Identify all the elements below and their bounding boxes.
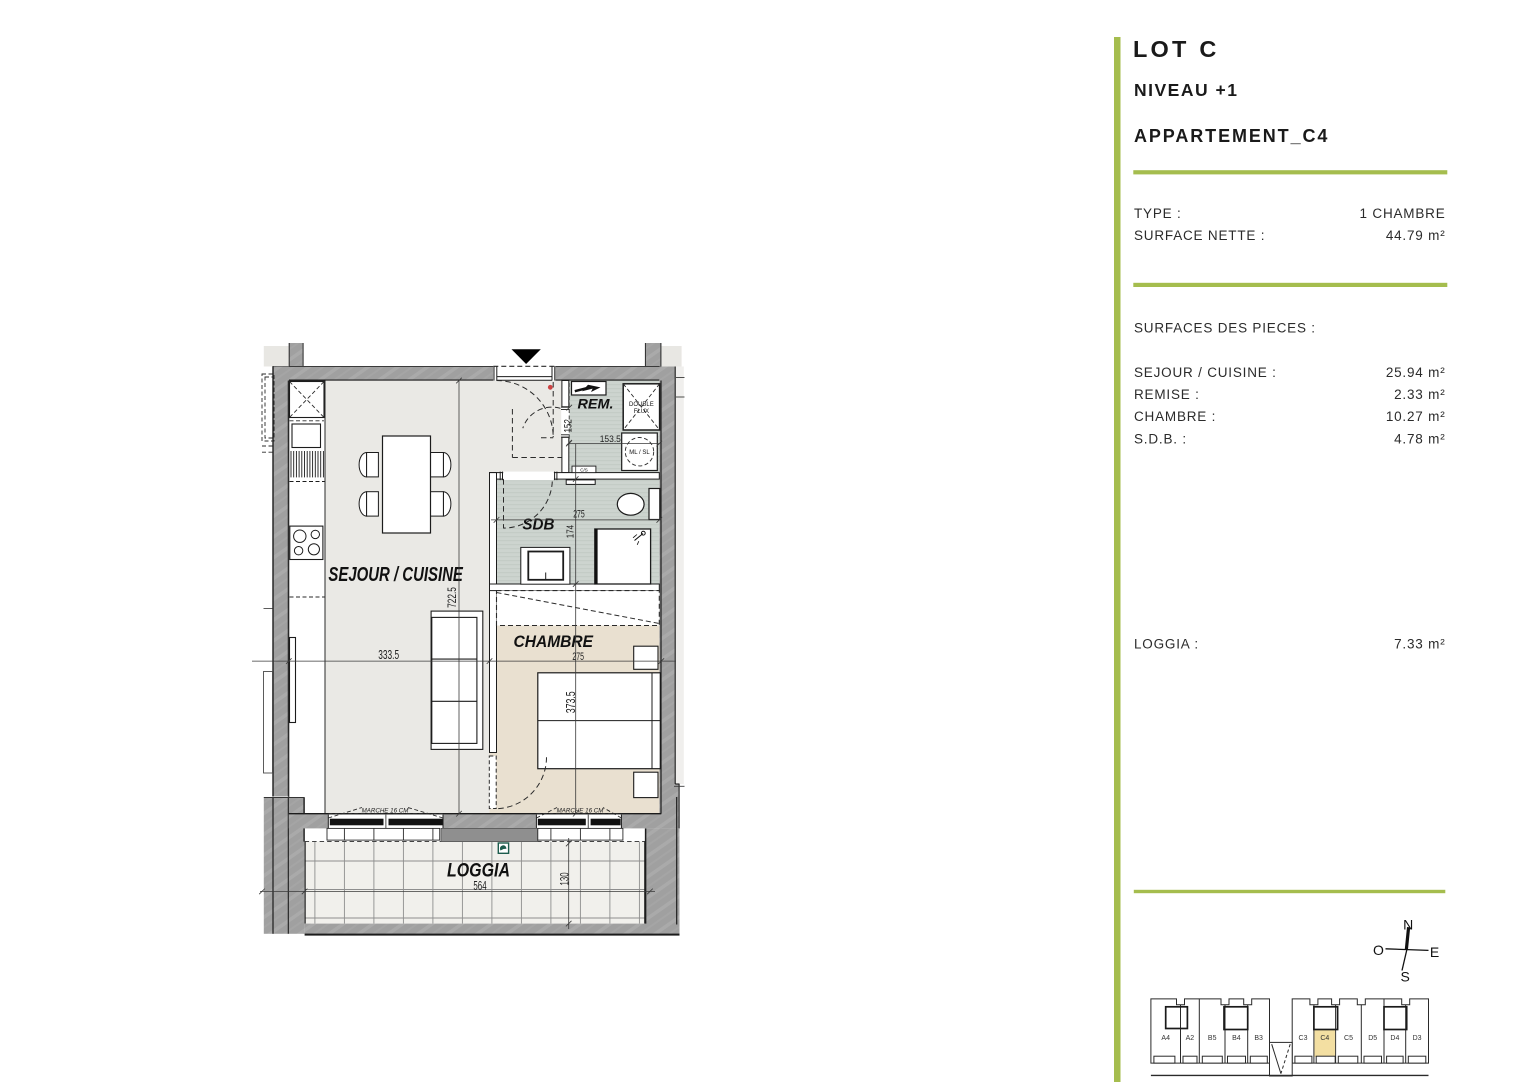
svg-text:564: 564 bbox=[473, 878, 486, 893]
svg-text:722.5: 722.5 bbox=[447, 587, 459, 608]
svg-text:SEJOUR / CUISINE :: SEJOUR / CUISINE : bbox=[1134, 365, 1277, 380]
svg-text:B5: B5 bbox=[1208, 1035, 1217, 1042]
svg-text:SURFACES DES PIECES :: SURFACES DES PIECES : bbox=[1134, 321, 1316, 336]
svg-text:25.94 m²: 25.94 m² bbox=[1386, 365, 1446, 380]
svg-text:D5: D5 bbox=[1368, 1035, 1377, 1042]
svg-text:10.27 m²: 10.27 m² bbox=[1386, 409, 1446, 424]
svg-text:C5: C5 bbox=[1344, 1035, 1353, 1042]
svg-text:7.33 m²: 7.33 m² bbox=[1394, 637, 1445, 652]
svg-text:B4: B4 bbox=[1232, 1035, 1241, 1042]
svg-text:C4: C4 bbox=[1320, 1035, 1329, 1042]
svg-text:E: E bbox=[1430, 944, 1439, 960]
svg-text:C3: C3 bbox=[1299, 1035, 1308, 1042]
svg-text:LOGGIA :: LOGGIA : bbox=[1134, 637, 1199, 652]
svg-text:SEJOUR / CUISINE: SEJOUR / CUISINE bbox=[328, 564, 463, 586]
svg-text:O: O bbox=[1373, 942, 1384, 958]
svg-text:152: 152 bbox=[563, 419, 575, 432]
svg-text:LOT C: LOT C bbox=[1133, 36, 1220, 62]
svg-text:REM.: REM. bbox=[578, 396, 614, 412]
svg-text:SURFACE NETTE :: SURFACE NETTE : bbox=[1134, 228, 1265, 243]
svg-text:174: 174 bbox=[565, 525, 577, 538]
svg-text:N: N bbox=[1403, 917, 1413, 933]
svg-text:D4: D4 bbox=[1390, 1035, 1399, 1042]
svg-text:REMISE :: REMISE : bbox=[1134, 387, 1200, 402]
svg-text:4.78 m²: 4.78 m² bbox=[1394, 432, 1445, 447]
svg-text:44.79 m²: 44.79 m² bbox=[1386, 228, 1446, 243]
svg-text:SDB: SDB bbox=[522, 517, 554, 534]
svg-text:130: 130 bbox=[558, 872, 572, 885]
svg-text:333.5: 333.5 bbox=[378, 648, 399, 662]
svg-text:APPARTEMENT_C4: APPARTEMENT_C4 bbox=[1134, 126, 1329, 146]
svg-text:FLUX: FLUX bbox=[634, 409, 649, 415]
svg-text:TYPE :: TYPE : bbox=[1134, 206, 1182, 221]
svg-text:A2: A2 bbox=[1186, 1035, 1195, 1042]
svg-text:1 CHAMBRE: 1 CHAMBRE bbox=[1360, 206, 1446, 221]
svg-text:NIVEAU +1: NIVEAU +1 bbox=[1134, 80, 1238, 100]
svg-text:275: 275 bbox=[573, 508, 585, 520]
svg-text:DOUBLE: DOUBLE bbox=[629, 402, 654, 408]
svg-text:S: S bbox=[1401, 968, 1410, 984]
svg-text:ML / SL: ML / SL bbox=[629, 450, 650, 456]
svg-text:153.5: 153.5 bbox=[600, 434, 621, 445]
svg-text:A4: A4 bbox=[1161, 1035, 1170, 1042]
svg-text:CHAMBRE: CHAMBRE bbox=[514, 632, 594, 651]
svg-text:CHAMBRE :: CHAMBRE : bbox=[1134, 409, 1216, 424]
svg-text:C/S: C/S bbox=[580, 468, 588, 473]
svg-text:B3: B3 bbox=[1254, 1035, 1263, 1042]
svg-text:373.5: 373.5 bbox=[564, 691, 578, 713]
svg-text:2.33 m²: 2.33 m² bbox=[1394, 387, 1445, 402]
svg-text:D3: D3 bbox=[1413, 1035, 1422, 1042]
svg-text:S.D.B. :: S.D.B. : bbox=[1134, 432, 1187, 447]
